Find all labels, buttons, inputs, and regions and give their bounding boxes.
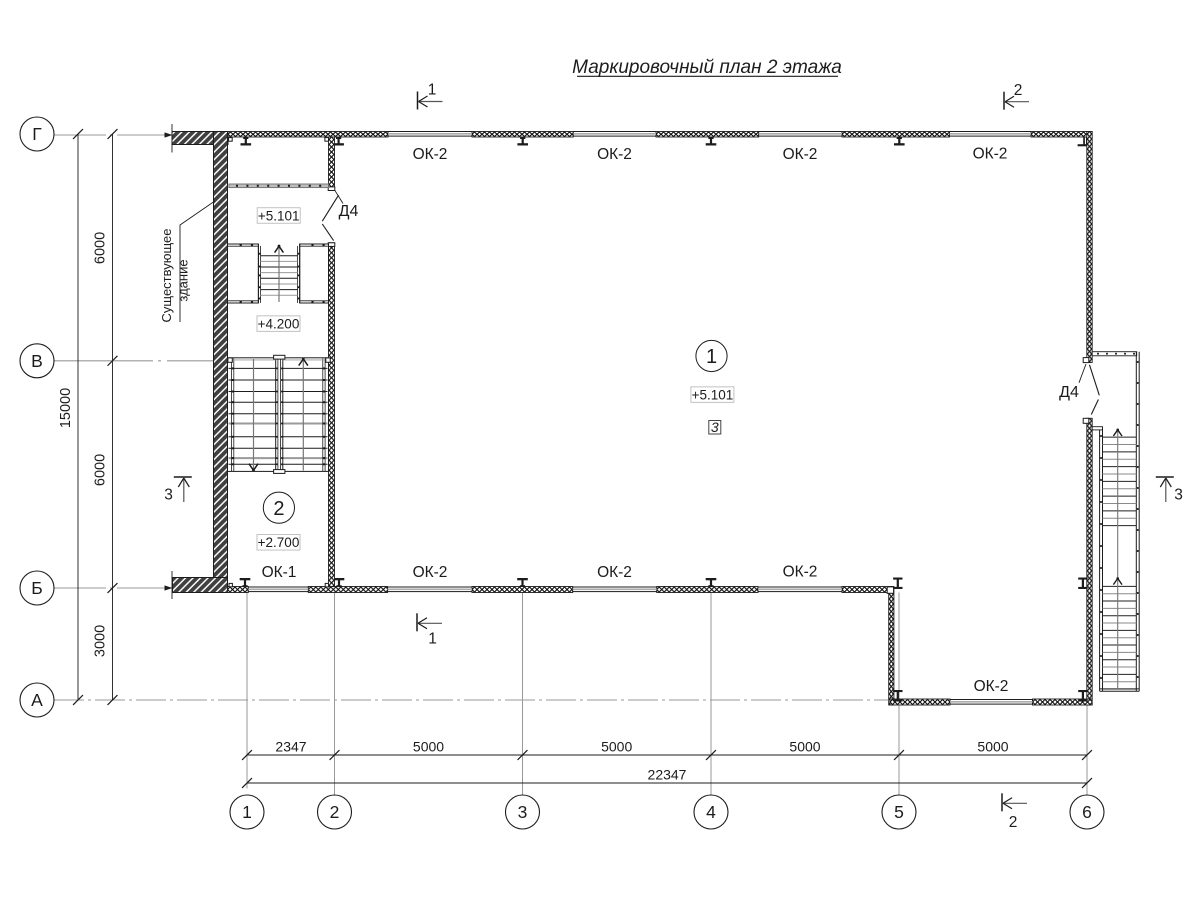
svg-text:3000: 3000	[93, 625, 109, 657]
svg-text:5000: 5000	[789, 739, 820, 755]
svg-text:ОК-1: ОК-1	[262, 564, 297, 581]
svg-text:6000: 6000	[93, 232, 109, 264]
svg-text:ОК-2: ОК-2	[974, 678, 1009, 695]
svg-text:3: 3	[164, 487, 173, 504]
svg-text:1: 1	[428, 82, 437, 99]
svg-text:+4.200: +4.200	[258, 316, 300, 331]
svg-text:Г: Г	[32, 124, 42, 144]
svg-text:Существующее: Существующее	[159, 228, 174, 322]
svg-text:15000: 15000	[58, 388, 74, 428]
svg-text:А: А	[31, 690, 43, 710]
svg-text:ОК-2: ОК-2	[413, 564, 448, 581]
svg-text:+5.101: +5.101	[692, 387, 734, 402]
svg-text:ОК-2: ОК-2	[597, 564, 632, 581]
svg-text:Б: Б	[31, 578, 42, 598]
svg-text:В: В	[31, 351, 43, 371]
svg-text:6000: 6000	[93, 454, 109, 486]
svg-text:1: 1	[242, 802, 252, 822]
svg-text:4: 4	[706, 802, 716, 822]
svg-text:здание: здание	[176, 259, 191, 301]
svg-text:6: 6	[1082, 802, 1092, 822]
svg-text:1: 1	[706, 346, 717, 368]
svg-text:3: 3	[1174, 487, 1183, 504]
svg-text:+5.101: +5.101	[258, 208, 300, 223]
svg-text:ОК-2: ОК-2	[783, 146, 818, 163]
svg-text:+2.700: +2.700	[258, 535, 300, 550]
svg-text:2: 2	[273, 498, 284, 520]
svg-text:2: 2	[1009, 814, 1018, 831]
svg-text:5000: 5000	[977, 739, 1008, 755]
svg-text:3: 3	[711, 419, 719, 435]
svg-text:2347: 2347	[275, 739, 306, 755]
svg-text:5: 5	[894, 802, 904, 822]
svg-text:ОК-2: ОК-2	[783, 564, 818, 581]
svg-text:1: 1	[428, 631, 437, 648]
svg-text:Д4: Д4	[1059, 384, 1079, 401]
svg-text:2: 2	[1014, 82, 1023, 99]
svg-text:22347: 22347	[648, 766, 687, 782]
svg-text:5000: 5000	[413, 739, 444, 755]
svg-text:ОК-2: ОК-2	[413, 146, 448, 163]
svg-text:3: 3	[518, 802, 528, 822]
svg-text:ОК-2: ОК-2	[973, 146, 1008, 163]
svg-text:2: 2	[330, 802, 340, 822]
svg-text:Д4: Д4	[339, 203, 359, 220]
svg-text:5000: 5000	[601, 739, 632, 755]
svg-text:ОК-2: ОК-2	[597, 146, 632, 163]
svg-text:Маркировочный план 2 этажа: Маркировочный план 2 этажа	[572, 57, 842, 78]
